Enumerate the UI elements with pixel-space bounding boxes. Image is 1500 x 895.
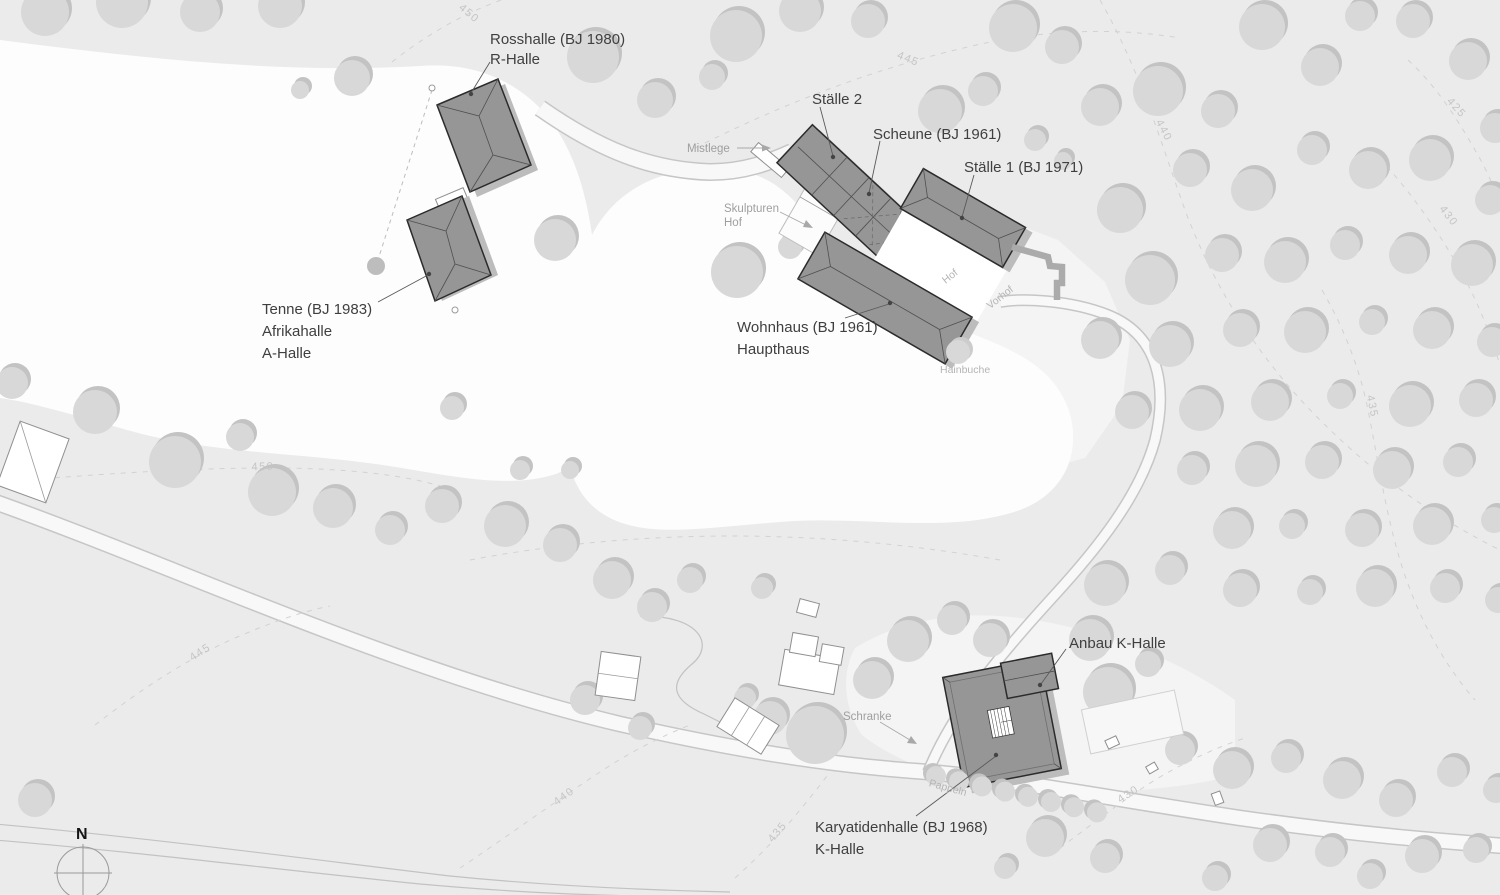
label-anbau: Anbau K-Halle	[1069, 635, 1166, 652]
label-skulpturen-line2: Hof	[724, 217, 743, 229]
label-mistlege: Mistlege	[687, 143, 730, 155]
label-skulpturen-line1: Skulpturen	[724, 203, 779, 215]
label-scheune: Scheune (BJ 1961)	[873, 126, 1001, 143]
label-tenne-line2: Afrikahalle	[262, 323, 332, 340]
label-tenne-line3: A-Halle	[262, 345, 311, 362]
label-wohnhaus-line1: Wohnhaus (BJ 1961)	[737, 319, 878, 336]
site-plan-canvas: Rosshalle (BJ 1980) R-Halle Ställe 2 Sch…	[0, 0, 1500, 895]
label-schranke: Schranke	[843, 711, 892, 723]
tree-trunk-marker	[367, 257, 385, 275]
site-plan: Rosshalle (BJ 1980) R-Halle Ställe 2 Sch…	[0, 0, 1500, 895]
boundary-marker-2	[452, 307, 458, 313]
label-staelle1: Ställe 1 (BJ 1971)	[964, 159, 1083, 176]
label-karyatidenhalle-line2: K-Halle	[815, 841, 864, 858]
boundary-marker	[429, 85, 435, 91]
label-karyatidenhalle-line1: Karyatidenhalle (BJ 1968)	[815, 819, 988, 836]
label-rosshalle-line1: Rosshalle (BJ 1980)	[490, 31, 625, 48]
label-staelle2: Ställe 2	[812, 91, 862, 108]
label-tenne-line1: Tenne (BJ 1983)	[262, 301, 372, 318]
label-hainbuche: Hainbuche	[940, 364, 990, 376]
contour-label-450-left: 450	[251, 461, 274, 474]
label-rosshalle-line2: R-Halle	[490, 51, 540, 68]
label-wohnhaus-line2: Haupthaus	[737, 341, 810, 358]
stair-hatch	[987, 706, 1014, 738]
north-label: N	[76, 826, 88, 843]
